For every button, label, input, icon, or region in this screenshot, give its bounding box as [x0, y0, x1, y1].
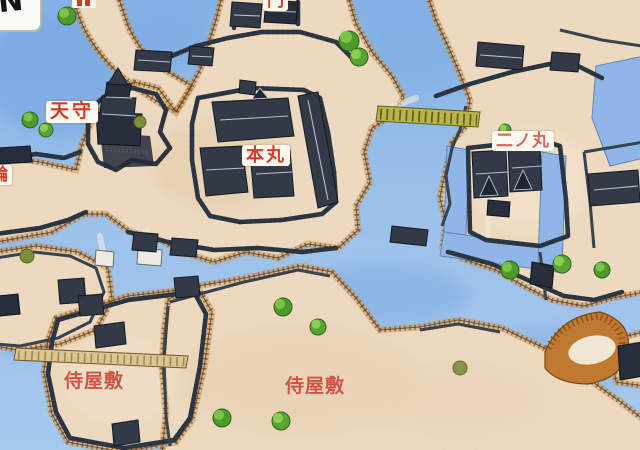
label-kuruwa-clipped: 輪: [0, 165, 12, 185]
clipped-label-fragment: [72, 0, 96, 8]
label-tenshu: 天守: [46, 101, 98, 123]
label-ninomaru: 二ノ丸: [492, 131, 554, 151]
castle-map: N 天守 本丸 二ノ丸 侍屋敷 侍屋敷 門 輪: [0, 0, 640, 450]
label-gate-clipped: 門: [263, 0, 288, 11]
label-samurai-residences-east: 侍屋敷: [285, 371, 345, 398]
north-compass-icon: N: [0, 0, 42, 32]
compass-letter: N: [0, 0, 25, 20]
label-samurai-residences-west: 侍屋敷: [64, 366, 124, 393]
label-honmaru: 本丸: [242, 145, 290, 166]
